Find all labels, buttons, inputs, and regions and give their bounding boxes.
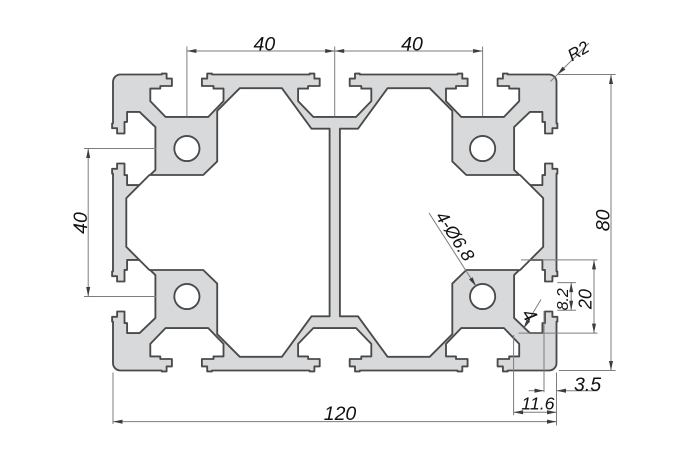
svg-text:40: 40 — [254, 33, 276, 55]
svg-text:20: 20 — [576, 289, 596, 310]
svg-text:11.6: 11.6 — [521, 394, 554, 414]
svg-text:3.5: 3.5 — [574, 374, 601, 396]
svg-text:40: 40 — [70, 212, 92, 234]
svg-text:120: 120 — [324, 403, 357, 425]
svg-text:40: 40 — [401, 33, 423, 55]
svg-text:8.2: 8.2 — [555, 288, 572, 310]
svg-text:80: 80 — [593, 209, 615, 231]
